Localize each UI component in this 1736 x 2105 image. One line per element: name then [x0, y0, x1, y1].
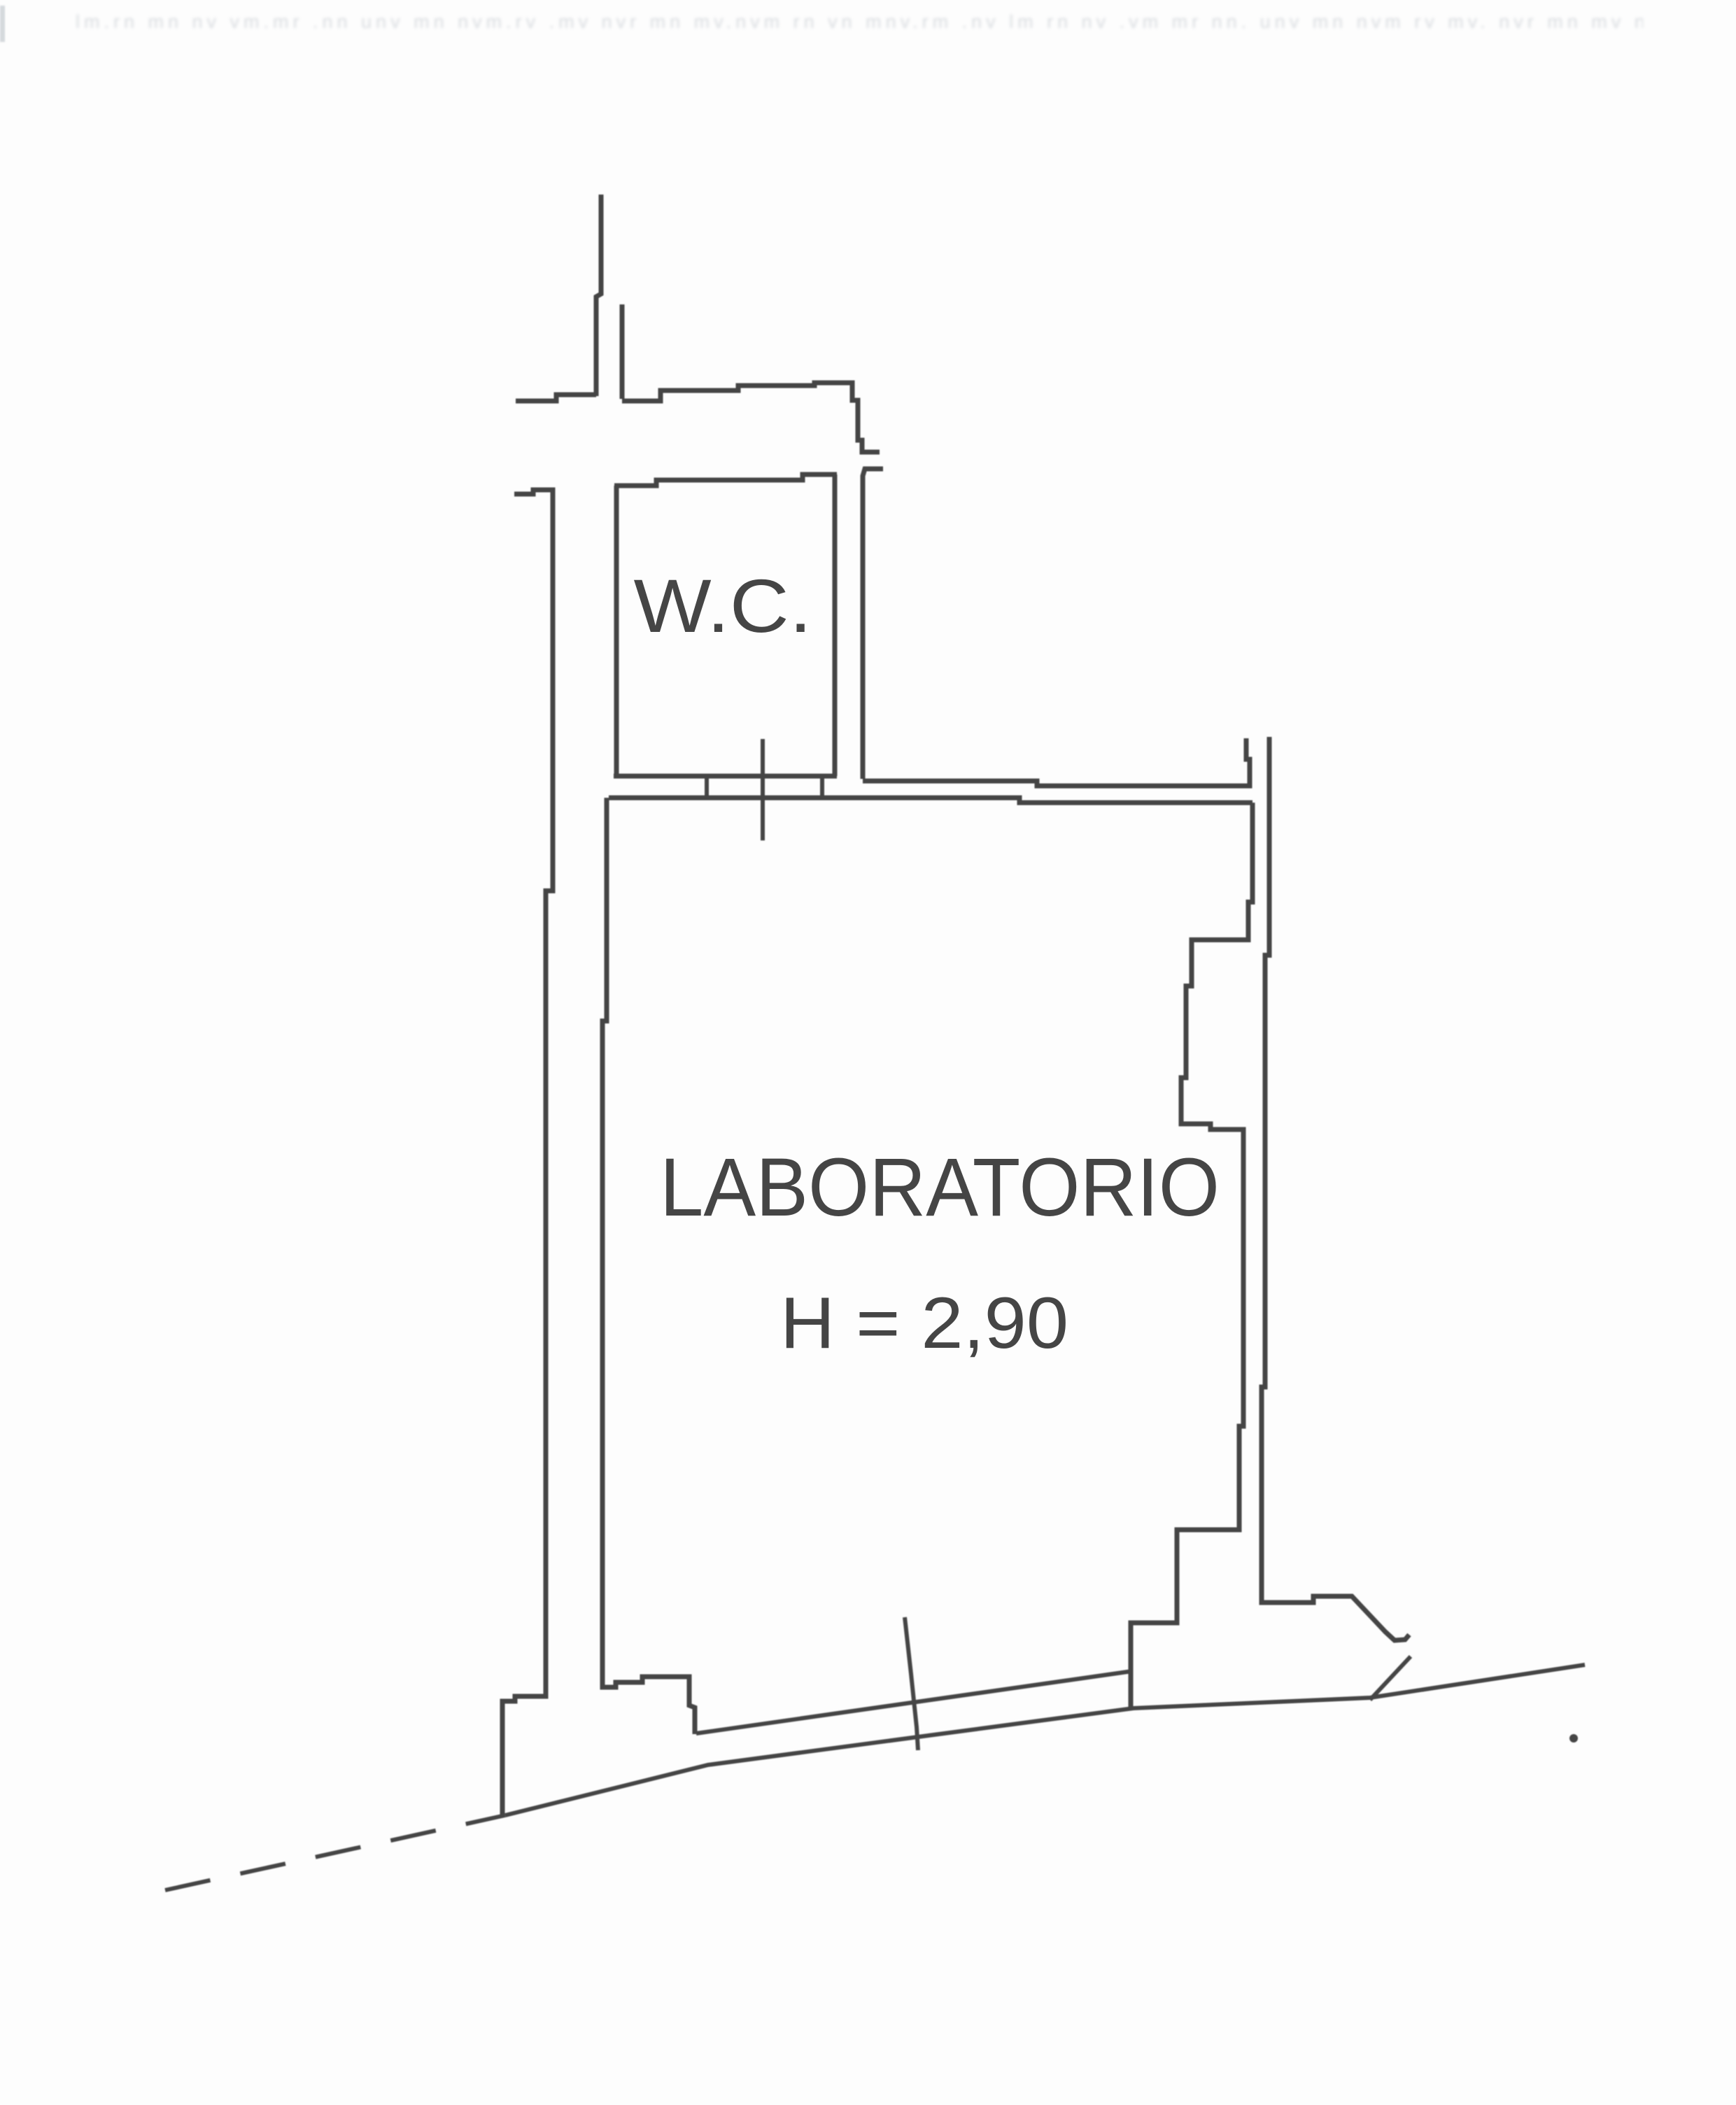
scanned-plan-page: lm.rn mn nv vm.mr .nn unv mn nvm.rv .mv …: [0, 0, 1736, 2105]
wall-right-boundary-steps: [1262, 737, 1409, 1640]
wall-wc-top: [614, 474, 837, 486]
wall-upper-right: [622, 383, 880, 452]
wall-top-stub-left: [596, 195, 601, 396]
wall-laboratorio-top: [609, 798, 1252, 803]
scan-speck: [1569, 1734, 1578, 1743]
wall-corridor-line: [863, 738, 1250, 786]
room-height-annotation: H = 2,90: [780, 1283, 1068, 1364]
wall-laboratorio-left: [602, 798, 695, 1734]
wall-outer-left: [502, 490, 553, 1815]
wall-upper-left: [516, 395, 596, 401]
wall-laboratorio-right-niche: [1131, 803, 1252, 1708]
floor-plan-drawing: W.C. LABORATORIO H = 2,90: [0, 0, 1736, 2105]
wall-corridor-right: [863, 469, 883, 779]
street-line-dashed: [165, 1815, 505, 1890]
street-line-lower: [505, 1665, 1585, 1815]
door-tick-entrance: [905, 1617, 918, 1750]
room-label-wc: W.C.: [634, 563, 812, 648]
room-label-laboratorio: LABORATORIO: [660, 1141, 1220, 1234]
